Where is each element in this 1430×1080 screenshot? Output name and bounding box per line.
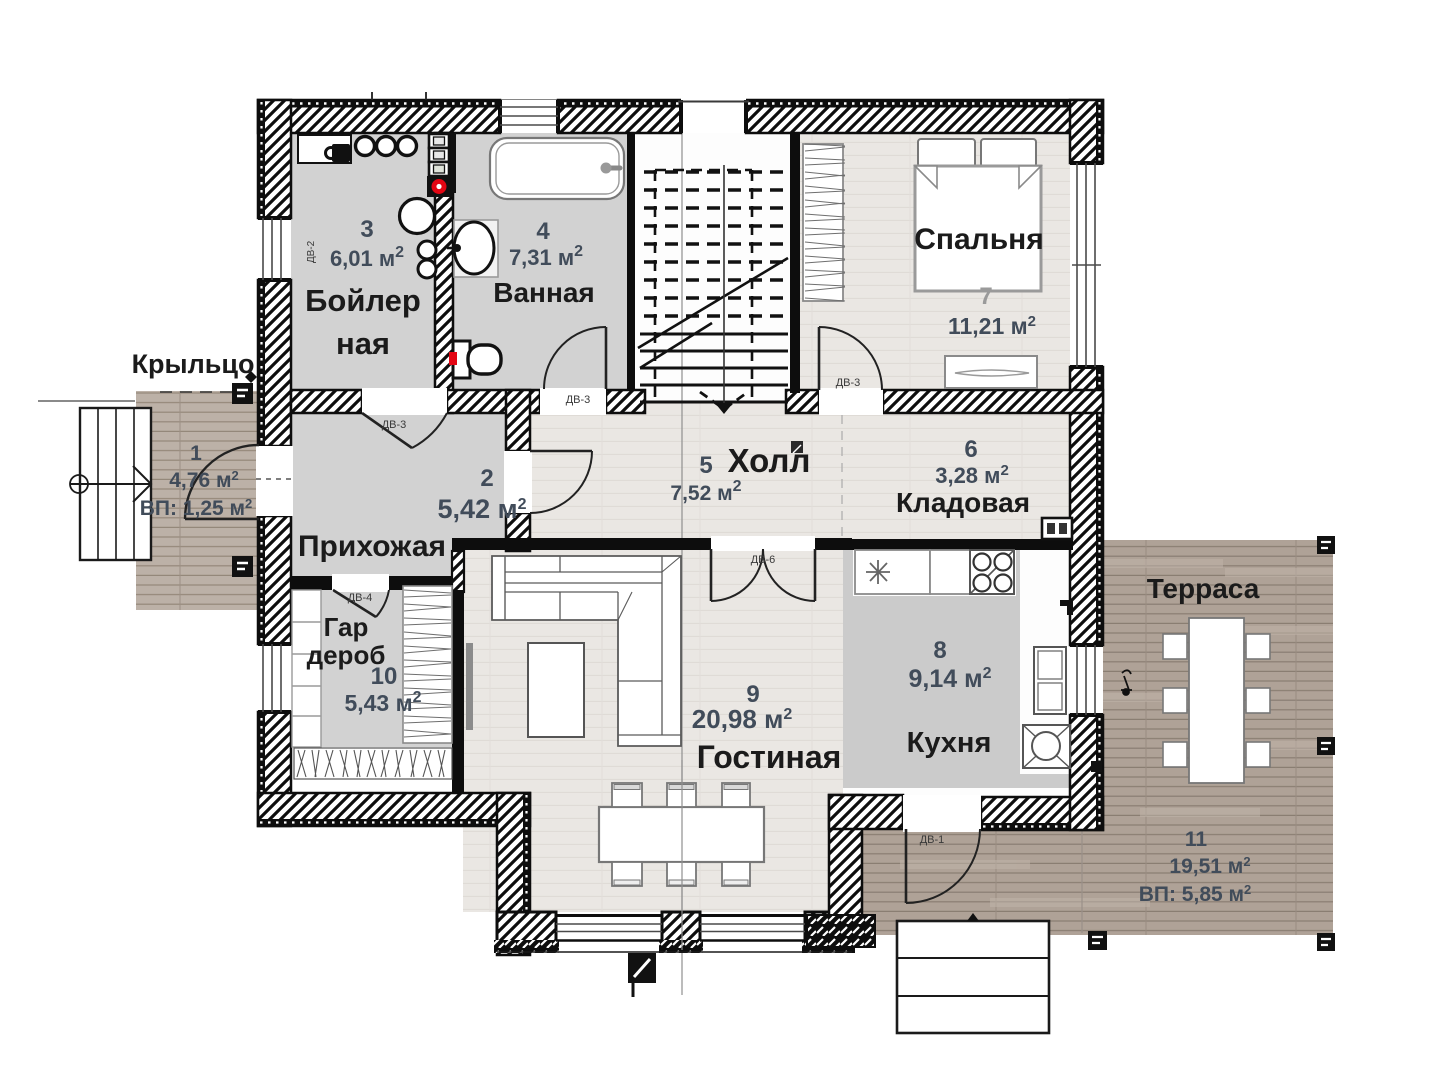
svg-text:4,76 м2: 4,76 м2 [169,468,238,492]
svg-text:4: 4 [536,218,550,245]
svg-text:7,31 м2: 7,31 м2 [509,243,583,270]
svg-text:Терраса: Терраса [1147,573,1260,604]
svg-text:ДВ-3: ДВ-3 [566,394,591,406]
svg-text:5: 5 [699,452,712,479]
svg-text:2: 2 [480,465,493,492]
svg-text:11: 11 [1185,828,1208,851]
svg-text:1: 1 [190,442,202,465]
svg-text:Холл: Холл [728,442,811,479]
svg-text:Кухня: Кухня [907,727,992,759]
svg-text:Спальня: Спальня [914,223,1044,256]
svg-text:ДВ-3: ДВ-3 [382,419,407,431]
svg-text:5,43 м2: 5,43 м2 [344,689,421,716]
svg-text:ДВ-2: ДВ-2 [306,240,317,263]
svg-text:Крыльцо: Крыльцо [132,349,255,379]
svg-text:6: 6 [964,436,977,463]
svg-text:19,51 м2: 19,51 м2 [1169,854,1250,878]
svg-text:ДВ-3: ДВ-3 [836,377,861,389]
svg-text:6,01 м2: 6,01 м2 [330,244,404,271]
svg-text:20,98 м2: 20,98 м2 [692,704,793,734]
svg-text:Ванная: Ванная [493,277,595,308]
svg-text:ная: ная [336,326,390,361]
svg-text:7: 7 [979,283,992,310]
svg-text:5,42 м2: 5,42 м2 [438,494,527,524]
svg-text:10: 10 [371,663,398,690]
svg-text:Бойлер: Бойлер [305,283,421,318]
svg-text:ДВ-1: ДВ-1 [920,834,945,846]
svg-text:7,52 м2: 7,52 м2 [670,478,741,505]
svg-text:8: 8 [933,637,946,664]
svg-text:3,28 м2: 3,28 м2 [935,462,1009,488]
svg-text:Кладовая: Кладовая [896,487,1030,518]
svg-text:Прихожая: Прихожая [298,530,446,563]
svg-text:11,21 м2: 11,21 м2 [948,313,1036,339]
svg-text:9,14 м2: 9,14 м2 [908,665,991,693]
svg-text:ВП: 5,85 м2: ВП: 5,85 м2 [1139,882,1252,906]
svg-text:Гостиная: Гостиная [697,739,842,775]
svg-text:Гар: Гар [324,612,369,642]
svg-text:ДВ-6: ДВ-6 [751,554,776,566]
svg-text:ДВ-4: ДВ-4 [348,592,373,604]
svg-text:3: 3 [360,216,373,243]
svg-text:ВП: 1,25 м2: ВП: 1,25 м2 [140,496,253,520]
